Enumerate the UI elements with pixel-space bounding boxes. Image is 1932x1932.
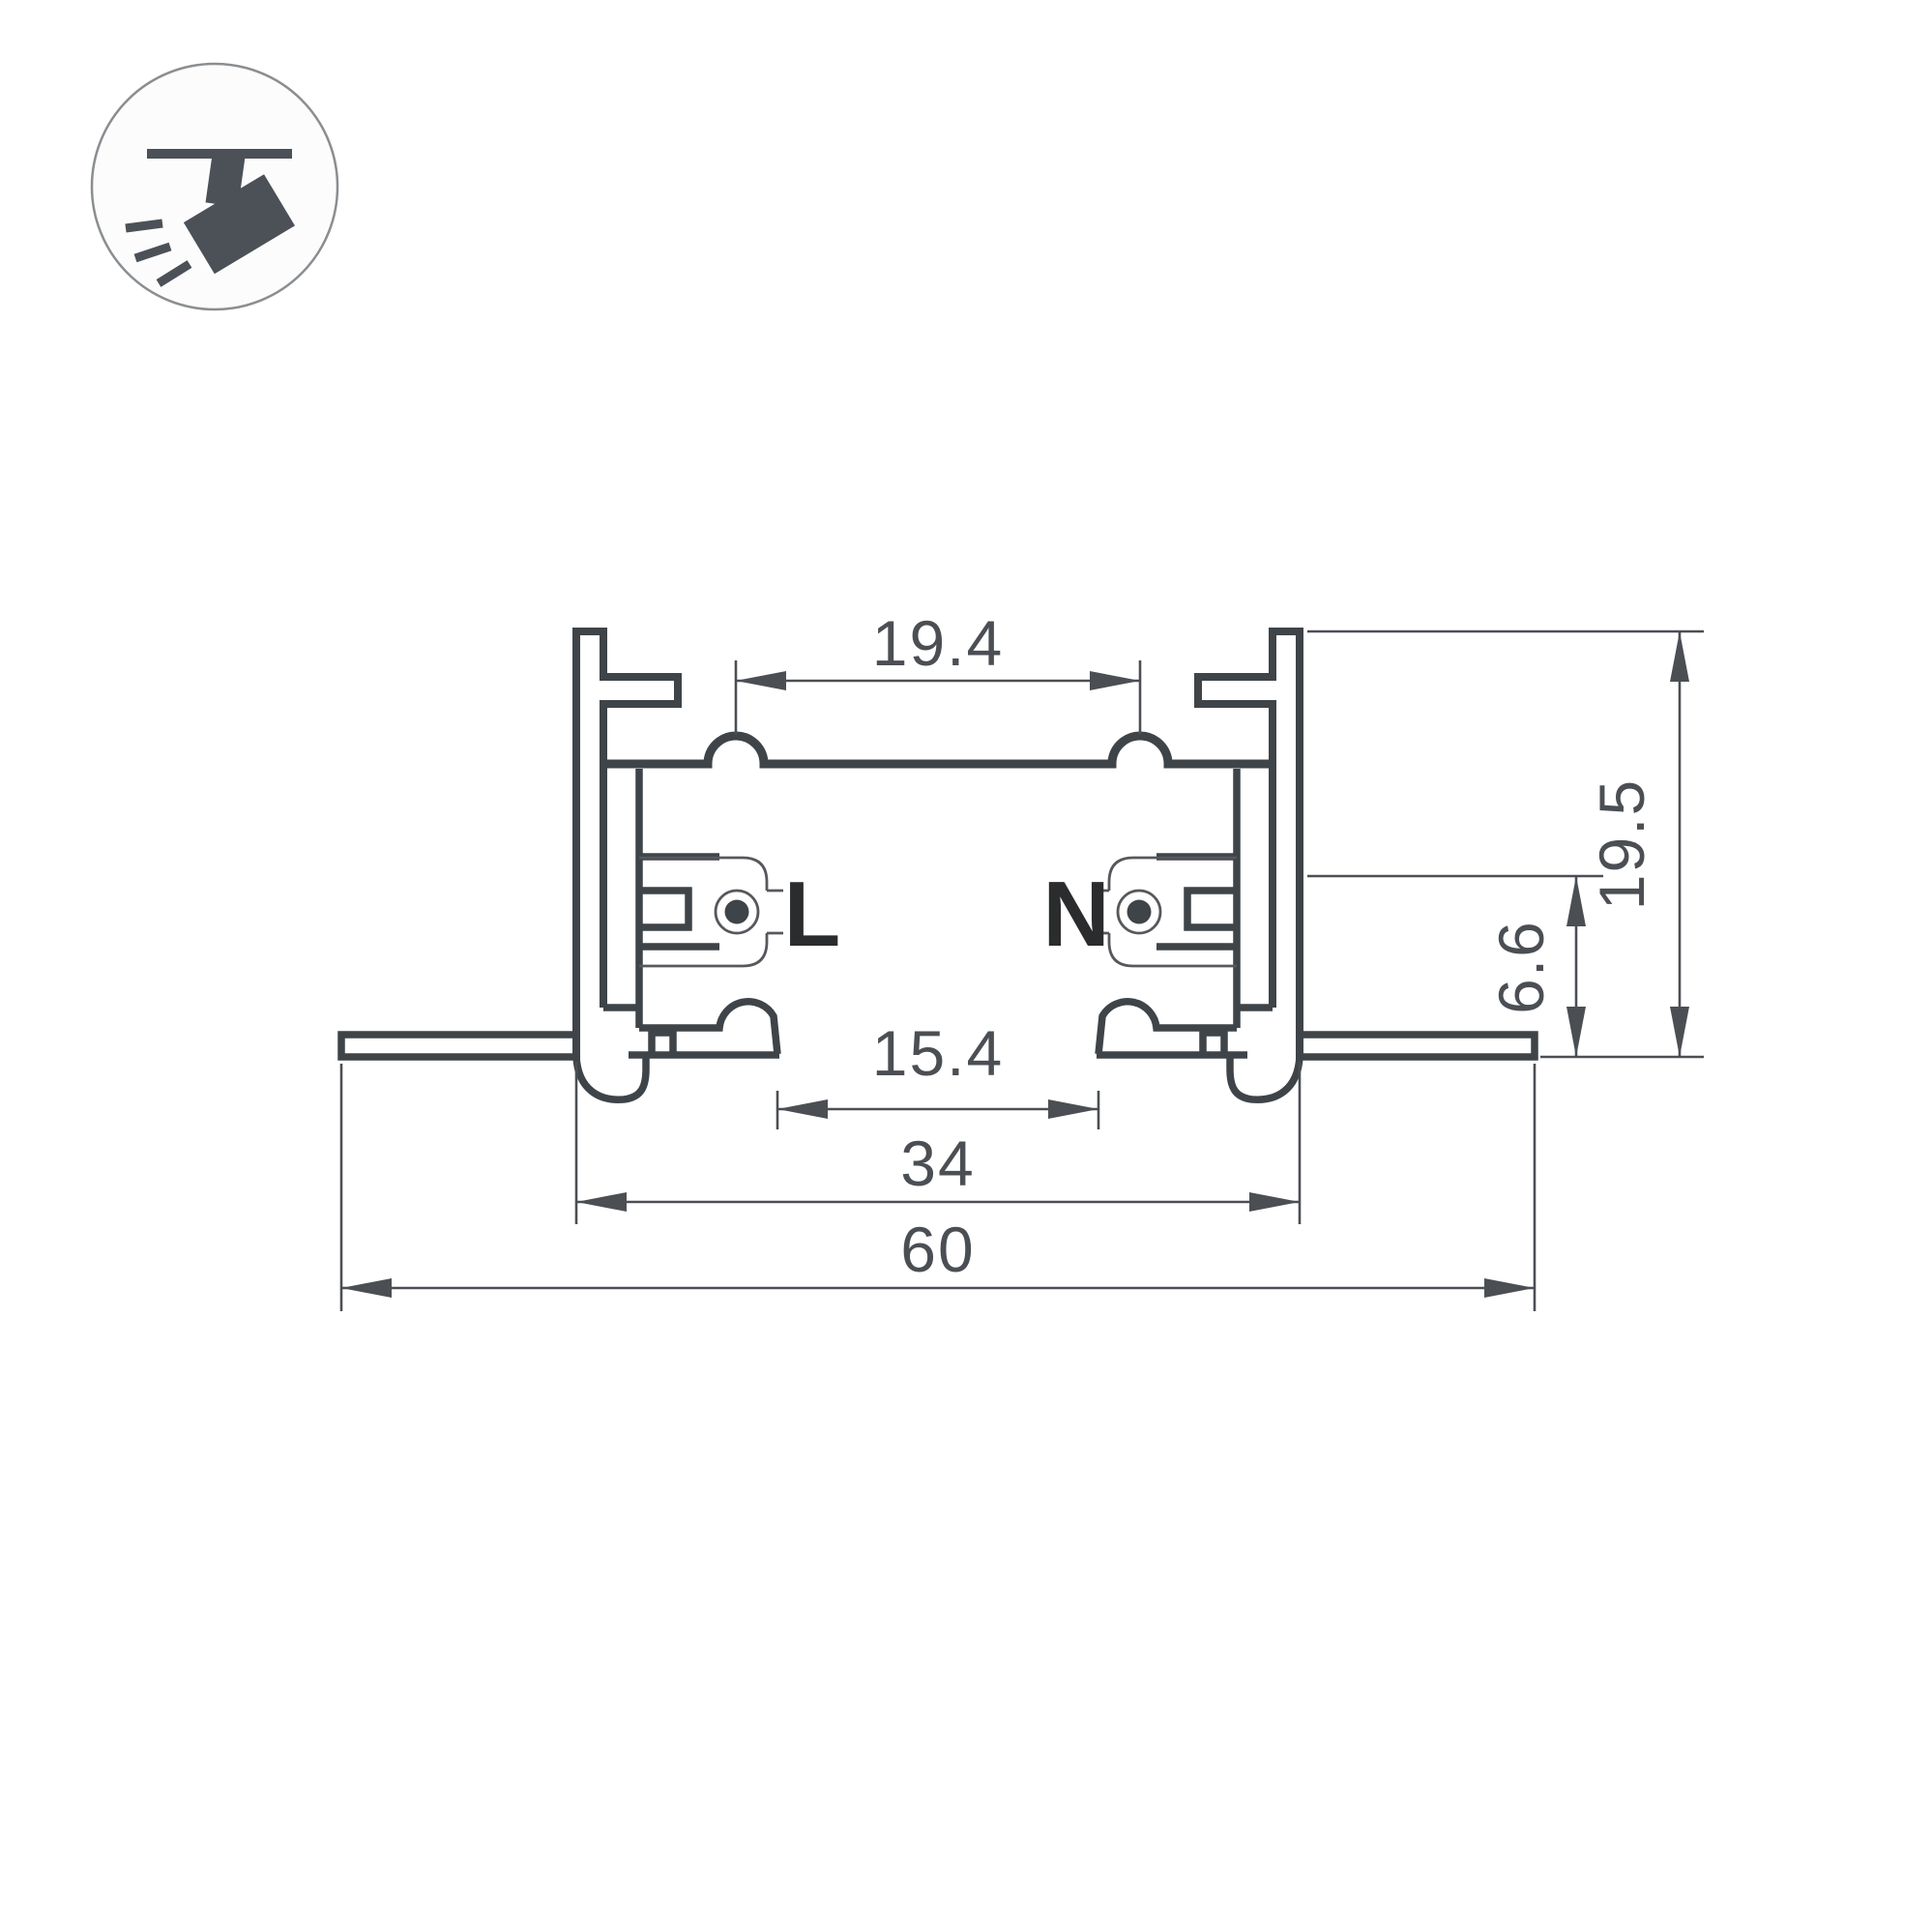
arrow-left-icon	[736, 671, 786, 690]
dimension-bottom-opening: 15.4	[777, 1017, 1098, 1129]
neutral-conductor-label: N	[1042, 863, 1109, 966]
arrow-left-icon	[777, 1099, 828, 1119]
dim-value-body-width: 34	[900, 1127, 975, 1199]
fixture-type-icon	[92, 64, 337, 309]
dim-value-overall-width: 60	[900, 1214, 975, 1285]
arrow-left-icon	[341, 1278, 392, 1298]
arrow-right-icon	[1249, 1192, 1300, 1212]
live-conductor-label: L	[784, 863, 841, 966]
dimension-top-inner-width: 19.4	[736, 607, 1140, 735]
dim-value-overall-height: 19.5	[1586, 778, 1657, 910]
profile-right-half	[934, 631, 1535, 1099]
dim-value-top-inner-width: 19.4	[872, 607, 1004, 679]
dimension-recess-depth: 6.6	[1307, 876, 1603, 1057]
profile-outer-wall	[576, 631, 678, 1059]
profile-bottom-lip	[603, 1002, 779, 1055]
profile-flange	[341, 1035, 576, 1057]
arrow-down-icon	[1566, 1007, 1586, 1057]
dim-value-bottom-opening: 15.4	[872, 1017, 1004, 1089]
profile-top-web	[600, 736, 942, 764]
arrow-right-icon	[1048, 1099, 1098, 1119]
arrow-up-icon	[1566, 876, 1586, 926]
profile-inner-bracket	[639, 769, 719, 1028]
arrow-down-icon	[1670, 1007, 1689, 1057]
arrow-right-icon	[1484, 1278, 1535, 1298]
profile-left-half	[341, 631, 942, 1099]
conductor-dot	[725, 900, 749, 924]
icon-light-ray-1	[126, 223, 162, 228]
arrow-right-icon	[1090, 671, 1140, 690]
arrow-left-icon	[576, 1192, 627, 1212]
profile-foot	[576, 1057, 646, 1099]
arrow-up-icon	[1670, 631, 1689, 682]
dim-value-recess-depth: 6.6	[1485, 920, 1557, 1014]
technical-drawing: L N 19.4 15.4 34 60 6.6 19.	[0, 0, 1932, 1932]
